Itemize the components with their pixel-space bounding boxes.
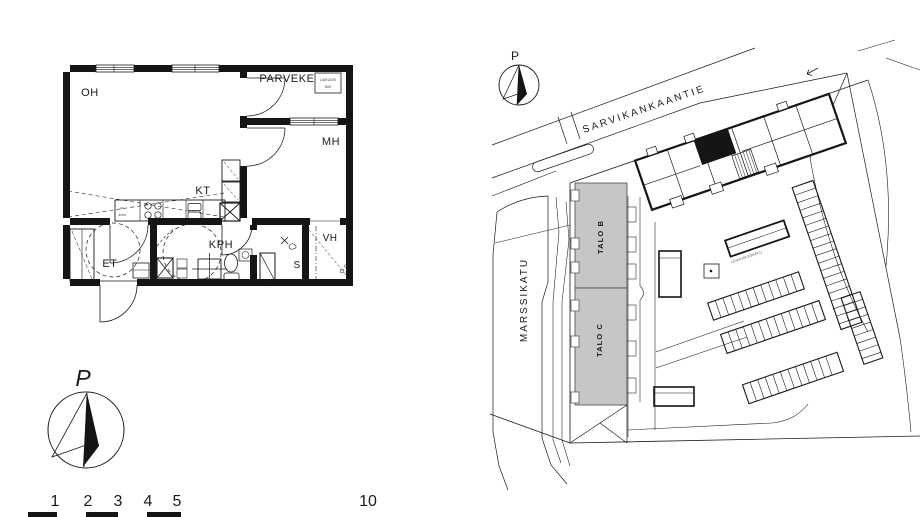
kitchen-tall-cabinets bbox=[222, 160, 240, 202]
room-label-closet: VH bbox=[323, 233, 338, 244]
sauna-heater bbox=[260, 253, 275, 281]
talo-c-building bbox=[570, 288, 636, 443]
north-arrow: P bbox=[48, 365, 124, 468]
window-living-1 bbox=[96, 65, 134, 72]
toilet bbox=[224, 254, 239, 281]
laundry-cabinet bbox=[177, 259, 187, 278]
shower-corner-dash bbox=[157, 228, 175, 246]
kitchen-tag-2: JK/PA bbox=[118, 213, 126, 217]
storage-building-2 bbox=[654, 387, 694, 406]
scale-tick-3: 3 bbox=[114, 493, 123, 510]
balcony-tag-line1: LIUKUOVI bbox=[320, 78, 336, 82]
shaft-bathroom bbox=[157, 258, 173, 278]
scale-tick-2: 2 bbox=[84, 493, 93, 510]
sauna-plant-scribble bbox=[289, 244, 296, 249]
scale-tick-10: 10 bbox=[359, 493, 377, 510]
parking-row-3 bbox=[742, 352, 843, 403]
scale-tick-5: 5 bbox=[173, 493, 182, 510]
scale-bar-segment-2 bbox=[86, 512, 118, 517]
flow-arrow-icon bbox=[807, 68, 818, 76]
bedroom-door-swing bbox=[247, 128, 285, 166]
scale-bar-segment-1 bbox=[28, 512, 57, 517]
architectural-drawing: AK JK/PA bbox=[0, 0, 920, 517]
room-label-living: OH bbox=[81, 87, 99, 99]
street-label-marssikatu: MARSSIKATU bbox=[519, 258, 530, 342]
site-north-label: P bbox=[511, 49, 519, 63]
building-label-talo-b: TALO B bbox=[596, 220, 605, 254]
shaft-kitchen bbox=[220, 203, 240, 221]
lot-boundary bbox=[490, 183, 920, 443]
balcony-tag-line2: 800 bbox=[325, 85, 331, 89]
room-label-balcony: PARVEKE bbox=[259, 73, 314, 85]
scale-bar: 1 2 3 4 5 10 bbox=[28, 493, 377, 517]
utility-box bbox=[704, 264, 719, 278]
room-label-bedroom: MH bbox=[322, 136, 340, 148]
scale-tick-4: 4 bbox=[144, 493, 153, 510]
site-north-arrow: P bbox=[499, 49, 539, 105]
kitchen-tag-1: AK bbox=[120, 206, 124, 210]
parking-row-4 bbox=[792, 181, 862, 330]
window-bedroom-balcony bbox=[290, 118, 338, 125]
street-label-sarvikankaantie: SARVIKANKAANTIE bbox=[581, 83, 707, 135]
parking-row-1 bbox=[708, 272, 805, 320]
parking-row-5 bbox=[841, 292, 883, 365]
storage-building-1 bbox=[659, 251, 681, 297]
north-arrow-needle bbox=[83, 393, 99, 467]
room-label-kitchen: KT bbox=[195, 185, 210, 197]
north-arrow-label: P bbox=[75, 365, 91, 391]
sauna-vent-mark bbox=[281, 237, 288, 244]
hall-wardrobe bbox=[70, 229, 94, 281]
room-label-bathroom: KPH bbox=[209, 239, 233, 251]
parking-row-2 bbox=[721, 301, 826, 354]
scale-bar-segment-3 bbox=[147, 512, 181, 517]
site-plan: P SARVIKANKAANTIE MARSSIKATU bbox=[490, 40, 920, 490]
scale-tick-1: 1 bbox=[51, 493, 60, 510]
walls bbox=[63, 65, 353, 286]
room-label-sauna: S bbox=[293, 260, 300, 271]
turning-circle-bathroom bbox=[163, 224, 221, 282]
balcony-tag: LIUKUOVI 800 bbox=[315, 73, 341, 93]
street-marssikatu bbox=[493, 196, 570, 490]
entry-door-swing bbox=[100, 281, 137, 322]
drawing-sheet: AK JK/PA bbox=[0, 0, 920, 517]
floor-plan: AK JK/PA bbox=[63, 65, 353, 322]
building-label-talo-c: TALO C bbox=[595, 323, 604, 357]
window-living-2 bbox=[172, 65, 219, 72]
kitchen-counter: AK JK/PA bbox=[115, 200, 225, 221]
room-label-entry: ET bbox=[102, 258, 117, 270]
